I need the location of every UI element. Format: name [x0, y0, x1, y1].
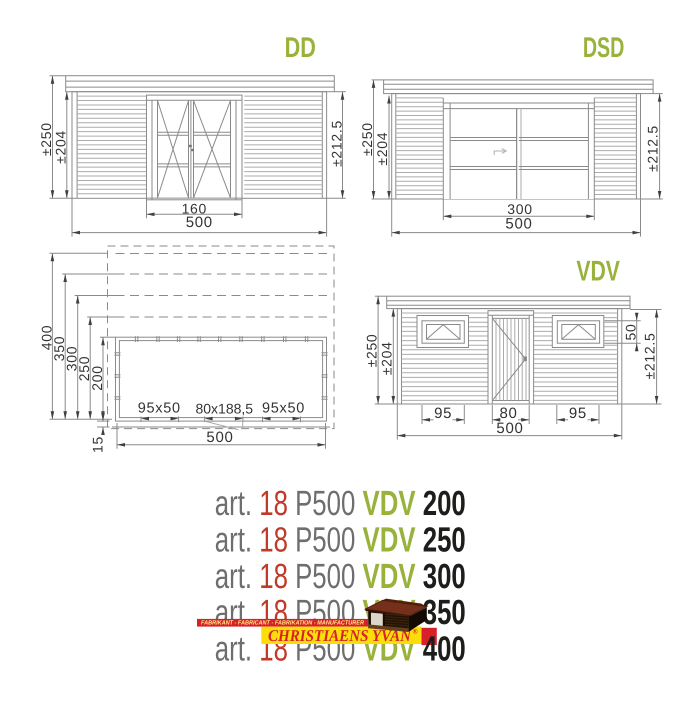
svg-text:±250: ±250 — [38, 122, 54, 156]
svg-text:®: ® — [413, 628, 419, 636]
svg-text:±212.5: ±212.5 — [645, 125, 661, 172]
svg-text:50: 50 — [622, 324, 638, 341]
svg-text:95: 95 — [569, 405, 587, 422]
svg-text:80x188,5: 80x188,5 — [195, 400, 253, 416]
svg-text:500: 500 — [505, 215, 532, 232]
svg-text:±250: ±250 — [363, 334, 379, 368]
svg-text:15: 15 — [90, 436, 106, 453]
svg-text:95x50: 95x50 — [262, 400, 305, 416]
svg-text:±212.5: ±212.5 — [641, 333, 657, 380]
svg-text:art. 18 P500 VDV 200: art. 18 P500 VDV 200 — [215, 484, 466, 523]
svg-text:±250: ±250 — [359, 122, 375, 156]
svg-text:95x50: 95x50 — [138, 400, 181, 416]
svg-text:art. 18 P500 VDV 250: art. 18 P500 VDV 250 — [215, 520, 466, 559]
svg-text:500: 500 — [206, 429, 233, 446]
svg-text:±204: ±204 — [378, 341, 394, 375]
svg-text:95: 95 — [434, 405, 452, 422]
svg-text:500: 500 — [186, 214, 213, 231]
svg-text:art. 18 P500 VDV 300: art. 18 P500 VDV 300 — [215, 557, 466, 596]
svg-text:500: 500 — [496, 420, 523, 437]
svg-text:±212.5: ±212.5 — [328, 120, 344, 167]
svg-text:±204: ±204 — [374, 132, 390, 166]
svg-text:200: 200 — [89, 365, 105, 390]
svg-text:DSD: DSD — [583, 32, 625, 64]
svg-text:DD: DD — [285, 32, 316, 64]
svg-text:VDV: VDV — [576, 255, 619, 287]
svg-text:±204: ±204 — [53, 130, 69, 164]
